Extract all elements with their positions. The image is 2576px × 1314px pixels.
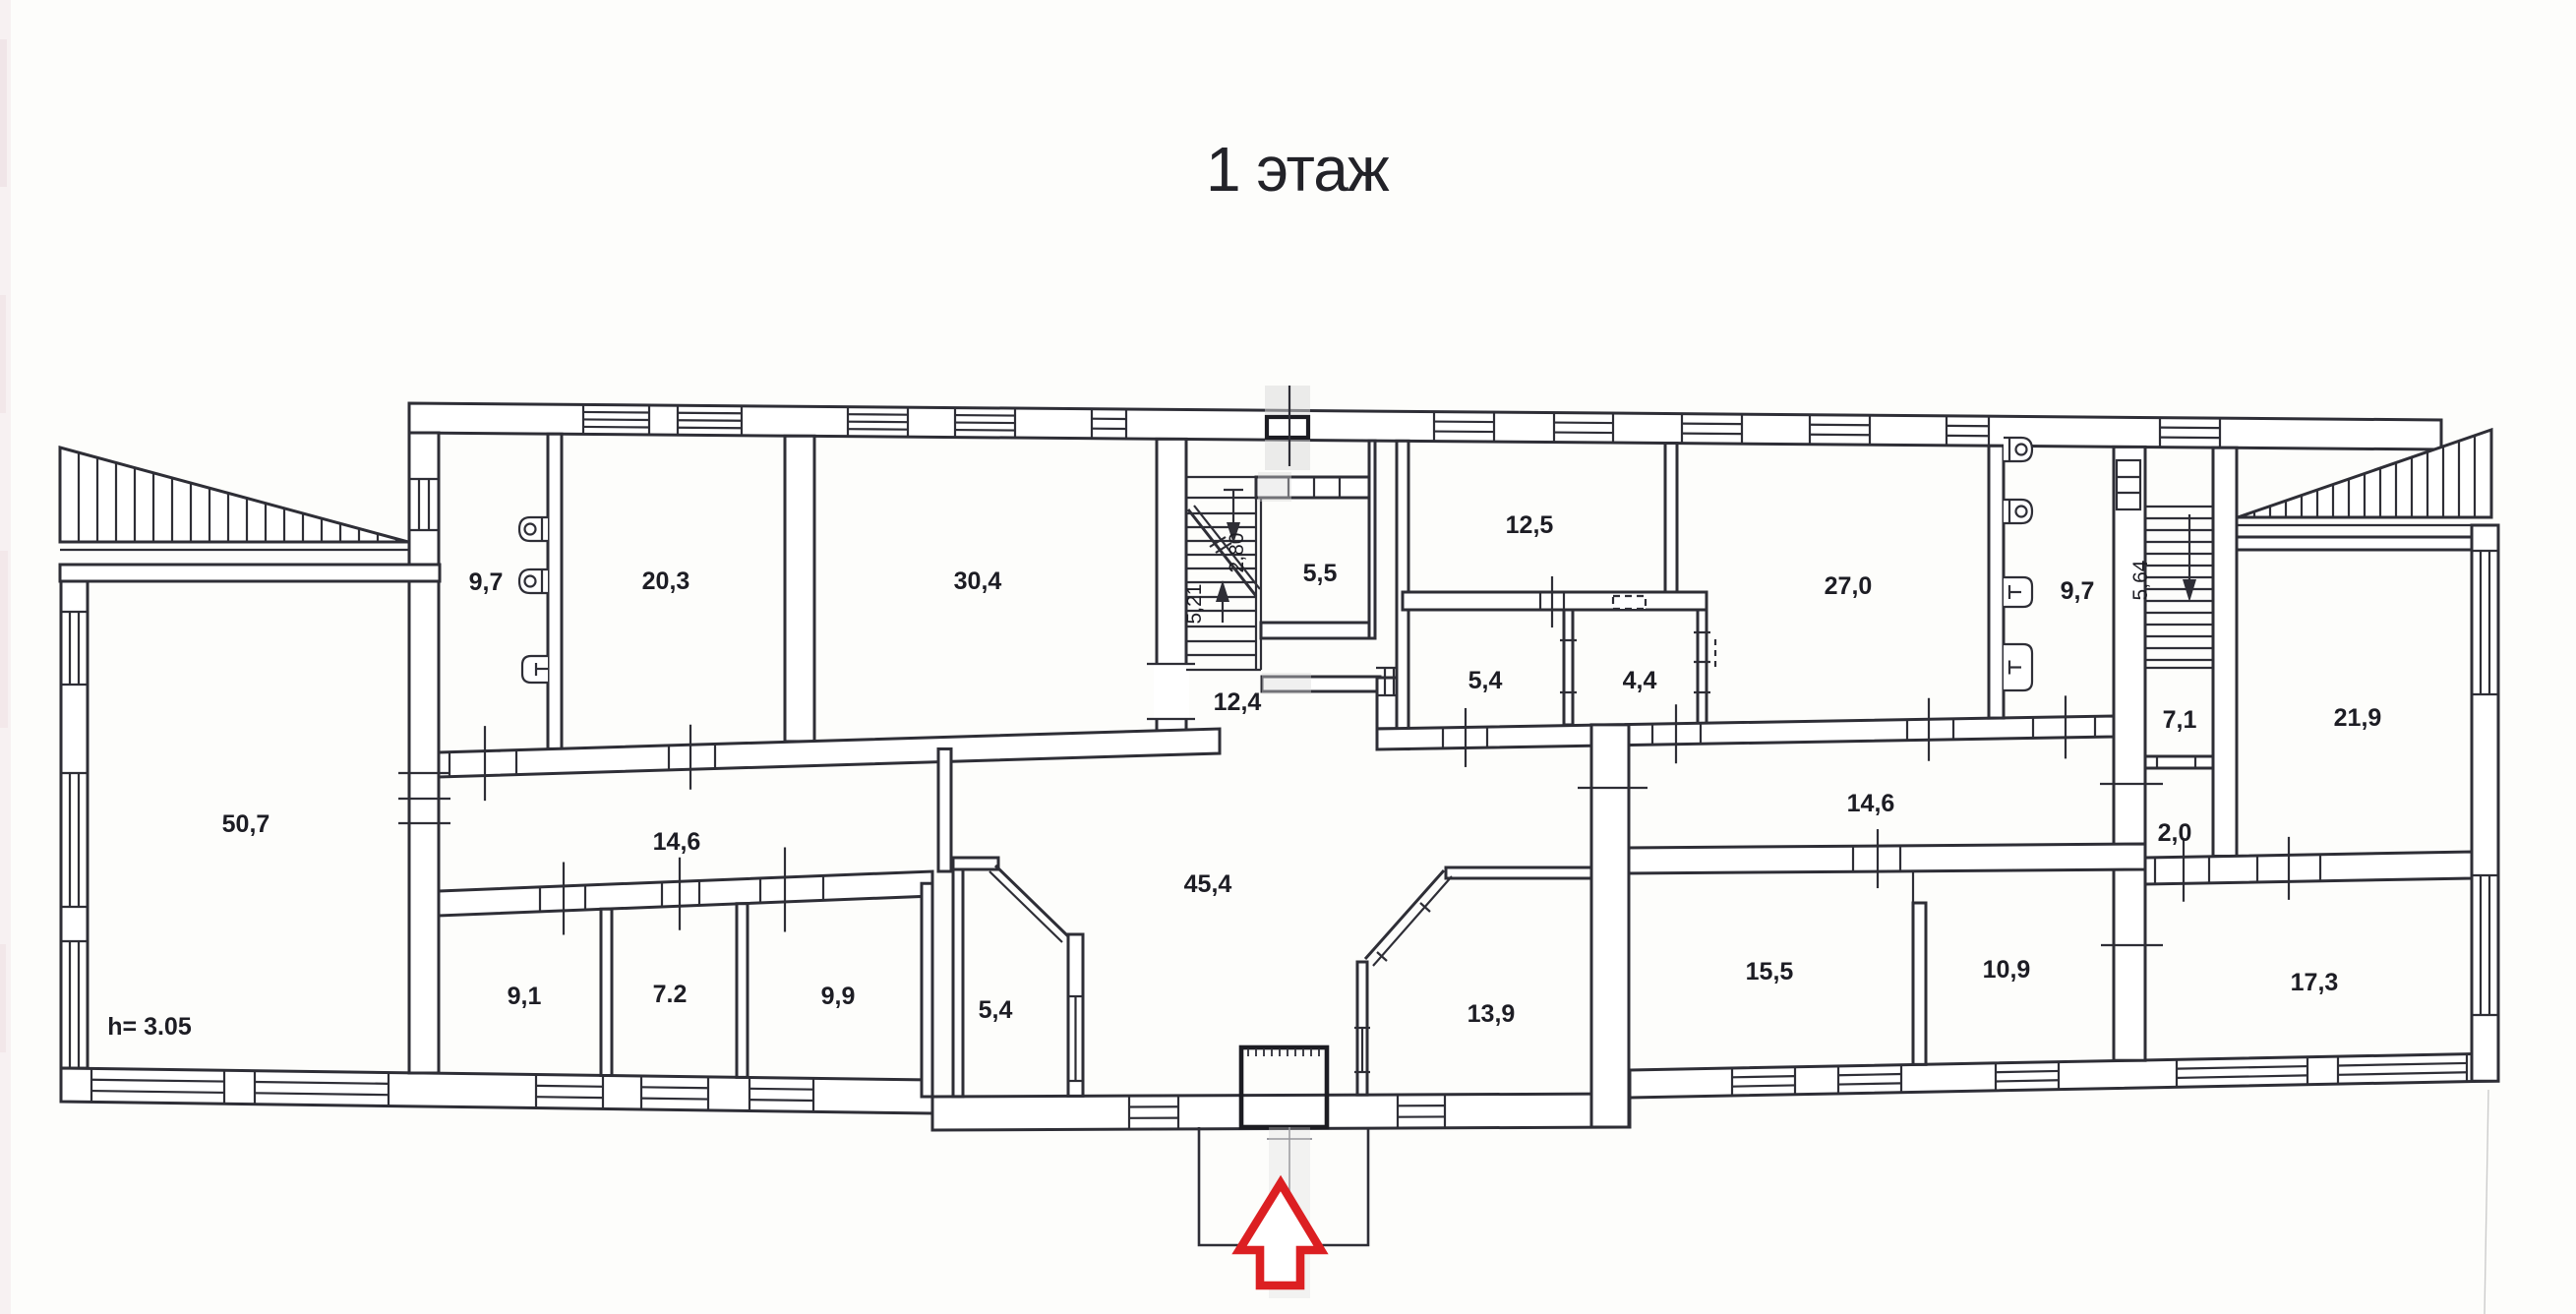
svg-text:1 этаж: 1 этаж xyxy=(1206,134,1390,205)
svg-text:12,4: 12,4 xyxy=(1214,688,1262,716)
svg-text:5,64: 5,64 xyxy=(2129,560,2152,600)
svg-text:7,1: 7,1 xyxy=(2163,706,2197,734)
svg-text:10,9: 10,9 xyxy=(1983,956,2031,984)
svg-text:20,3: 20,3 xyxy=(642,567,690,595)
svg-text:13,9: 13,9 xyxy=(1468,1000,1516,1028)
svg-text:5,21: 5,21 xyxy=(1183,584,1206,625)
svg-text:7.2: 7.2 xyxy=(653,981,688,1008)
svg-text:9,7: 9,7 xyxy=(469,568,504,596)
svg-text:5,4: 5,4 xyxy=(1468,667,1503,694)
svg-text:30,4: 30,4 xyxy=(954,567,1002,595)
svg-text:15,5: 15,5 xyxy=(1746,958,1794,985)
svg-text:9,9: 9,9 xyxy=(821,983,856,1010)
svg-text:4,4: 4,4 xyxy=(1623,667,1657,694)
svg-text:h= 3.05: h= 3.05 xyxy=(107,1013,192,1041)
svg-text:9,7: 9,7 xyxy=(2061,577,2095,605)
svg-text:5,5: 5,5 xyxy=(1303,560,1338,587)
svg-text:50,7: 50,7 xyxy=(222,810,270,838)
svg-text:9,1: 9,1 xyxy=(508,983,542,1010)
svg-text:2,0: 2,0 xyxy=(2158,819,2192,847)
svg-text:17,3: 17,3 xyxy=(2291,969,2339,996)
svg-text:12,5: 12,5 xyxy=(1506,511,1554,539)
svg-text:2,80: 2,80 xyxy=(1226,533,1248,573)
svg-text:14,6: 14,6 xyxy=(653,828,701,856)
svg-text:27,0: 27,0 xyxy=(1825,572,1873,600)
svg-text:14,6: 14,6 xyxy=(1847,790,1895,817)
svg-text:21,9: 21,9 xyxy=(2334,704,2382,732)
svg-text:5,4: 5,4 xyxy=(979,996,1013,1024)
svg-text:45,4: 45,4 xyxy=(1184,870,1232,898)
